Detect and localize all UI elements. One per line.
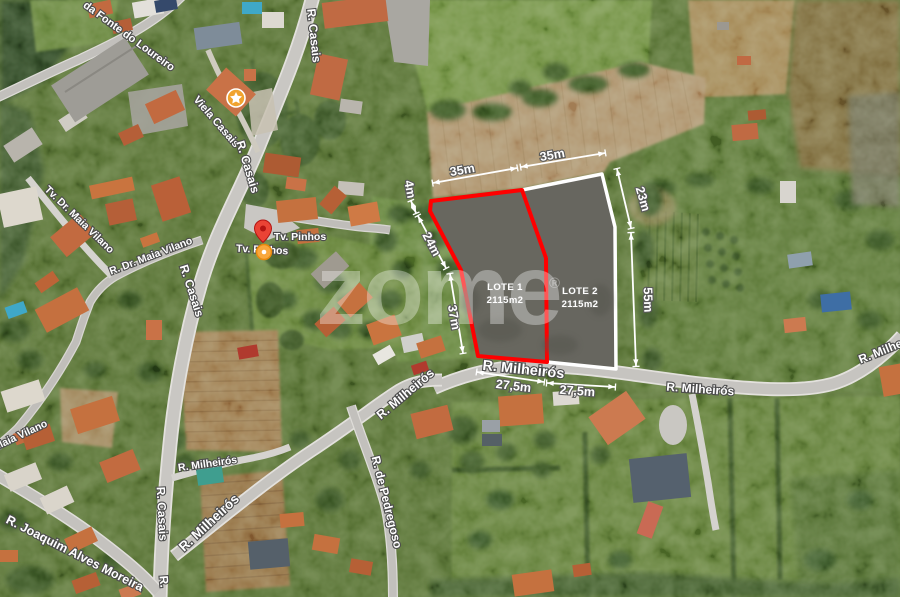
svg-text:LOTE 2: LOTE 2 <box>562 286 598 297</box>
svg-text:55m: 55m <box>641 287 656 313</box>
svg-text:R.: R. <box>156 575 171 588</box>
svg-text:27,5m: 27,5m <box>559 383 595 399</box>
svg-text:R. Casais: R. Casais <box>154 486 171 541</box>
svg-text:2115m2: 2115m2 <box>562 299 599 310</box>
svg-text:®: ® <box>549 275 560 292</box>
svg-text:zome: zome <box>316 234 560 346</box>
